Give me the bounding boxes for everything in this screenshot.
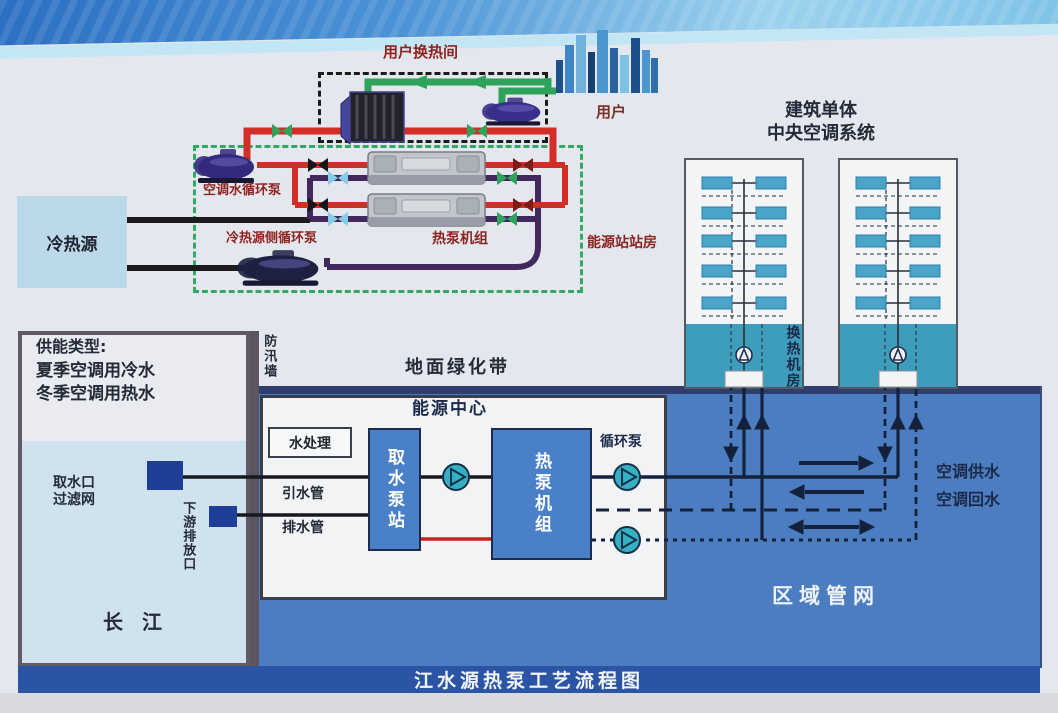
downstream-outlet-label: 下游排放口 — [179, 501, 195, 571]
supply-type-title: 供能类型: — [36, 337, 106, 357]
plate-heat-exchanger — [341, 92, 404, 144]
buildings-title-line1: 建筑单体 — [726, 100, 916, 123]
footer-title-band: 江水源热泵工艺流程图 — [18, 666, 1040, 693]
energy-station-room-label: 能源站站房 — [587, 235, 657, 253]
heat-pump-unit-1 — [368, 152, 485, 184]
green-belt-label: 地面绿化带 — [405, 357, 510, 380]
heat-pump-unit-2 — [368, 194, 485, 226]
city-skyline — [556, 30, 658, 93]
intake-filter-label-line1: 取水口 — [53, 475, 95, 493]
buildings-title-line2: 中央空调系统 — [726, 123, 916, 146]
hx-machine-room-label: 换热机房 — [783, 325, 801, 389]
source-side-pump-label: 冷热源侧循环泵 — [226, 231, 317, 247]
source-side-pump-icon — [237, 250, 318, 286]
energy-center-title: 能源中心 — [412, 399, 488, 420]
ac-supply-label: 空调供水 — [936, 462, 1000, 482]
regional-network-label: 区域管网 — [772, 583, 880, 609]
circulation-pump-label: 循环泵 — [600, 434, 642, 452]
process-flow-board: 冷热源 水处理 取水泵站 热泵机组 — [0, 0, 1058, 713]
intake-pipe-label: 引水管 — [282, 486, 324, 504]
intake-filter-label-line2: 过滤网 — [53, 492, 95, 510]
flood-wall-label: 防汛墙 — [260, 334, 276, 379]
heat-pump-units-label: 热泵机组 — [432, 231, 488, 249]
ac-return-label: 空调回水 — [936, 490, 1000, 510]
regional-network-pipes — [183, 388, 923, 540]
river-label: 长 江 — [103, 610, 168, 635]
supply-type-summer: 夏季空调用冷水 — [36, 361, 155, 382]
ac-water-pump-label: 空调水循环泵 — [203, 183, 281, 199]
user-hx-pump-icon — [482, 98, 540, 126]
drain-pipe-label: 排水管 — [282, 520, 324, 538]
building-2 — [839, 159, 957, 388]
user-hx-room-label: 用户换热间 — [383, 43, 458, 62]
supply-type-winter: 冬季空调用热水 — [36, 384, 155, 405]
user-label: 用户 — [596, 103, 626, 122]
footer-title: 江水源热泵工艺流程图 — [414, 666, 644, 693]
